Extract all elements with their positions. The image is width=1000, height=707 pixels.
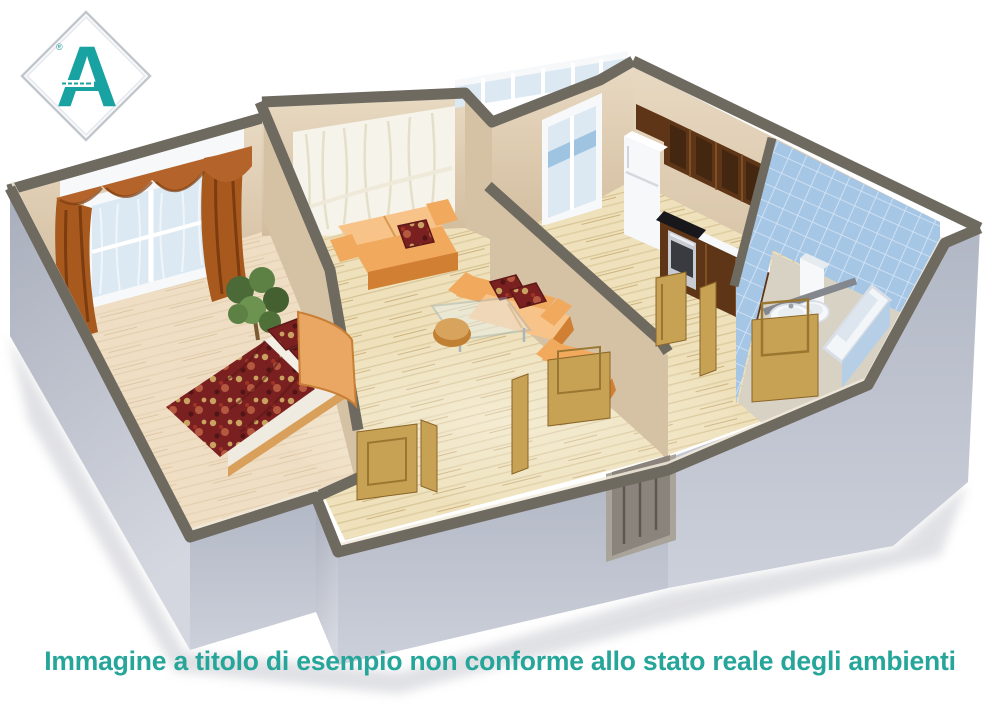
door-kitchen xyxy=(656,272,686,346)
logo-letter: A xyxy=(56,29,118,125)
caption-text: Immagine a titolo di esempio non conform… xyxy=(44,646,956,676)
floor-plan-render: A ® xyxy=(0,0,1000,707)
door-bedroom xyxy=(357,420,437,500)
agency-logo: A ® xyxy=(22,12,150,140)
registered-mark: ® xyxy=(56,42,63,52)
caption: Immagine a titolo di esempio non conform… xyxy=(0,646,1000,677)
